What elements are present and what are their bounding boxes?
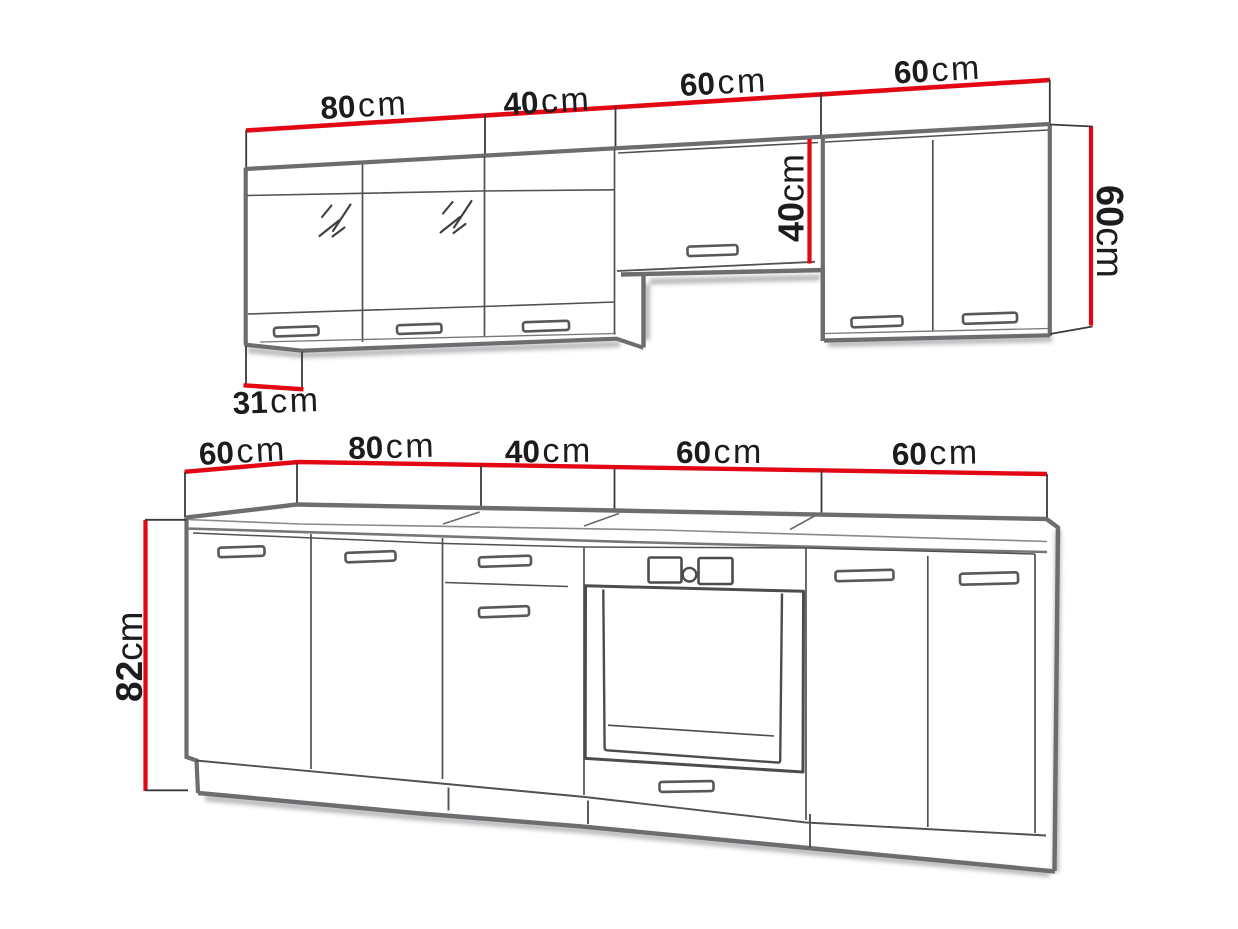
svg-text:40cm: 40cm bbox=[502, 80, 592, 123]
svg-text:60cm: 60cm bbox=[893, 49, 983, 92]
svg-text:60cm: 60cm bbox=[198, 430, 288, 473]
svg-text:40cm: 40cm bbox=[505, 432, 593, 471]
svg-text:60cm: 60cm bbox=[679, 61, 769, 104]
svg-text:60cm: 60cm bbox=[1088, 185, 1130, 278]
svg-text:60cm: 60cm bbox=[891, 433, 980, 473]
svg-text:40cm: 40cm bbox=[771, 154, 812, 242]
svg-text:60cm: 60cm bbox=[676, 433, 764, 471]
svg-text:80cm: 80cm bbox=[319, 84, 409, 127]
svg-text:31cm: 31cm bbox=[232, 381, 321, 422]
svg-text:82cm: 82cm bbox=[109, 612, 150, 702]
svg-text:80cm: 80cm bbox=[348, 427, 437, 467]
